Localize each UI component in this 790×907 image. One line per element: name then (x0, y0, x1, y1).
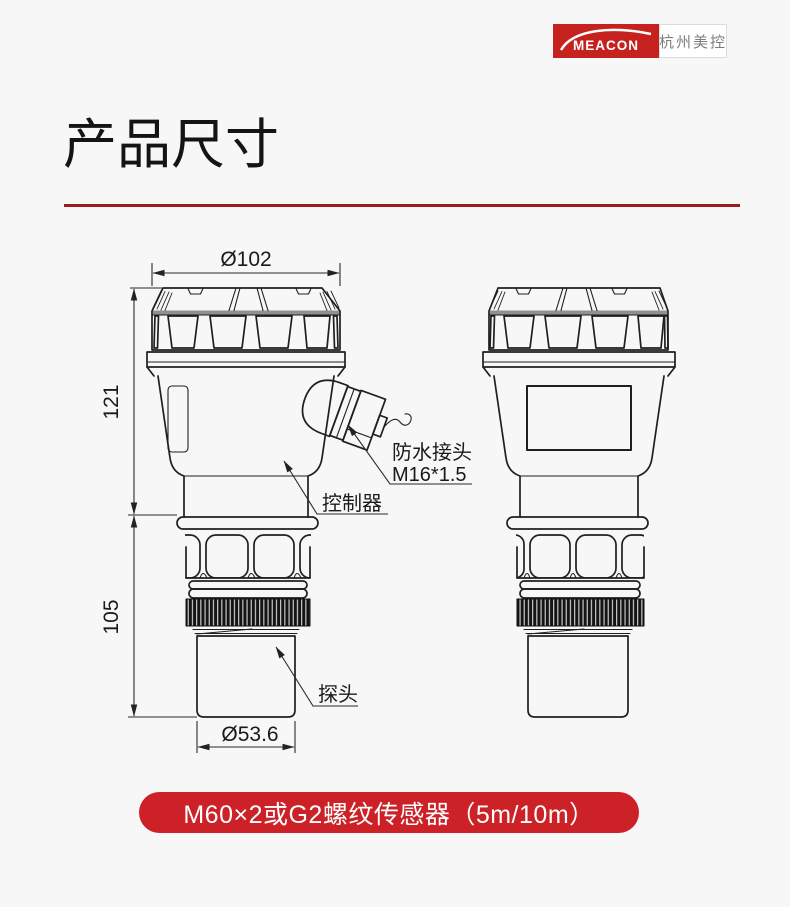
cap-flange (147, 352, 345, 367)
neck-flange (507, 517, 648, 529)
neck-flange (177, 517, 318, 529)
dimension-drawing: Ø102 121 105 Ø53.6 防水接头 M16*1.5 控制器 探头 (0, 0, 790, 907)
product-spec-text: M60×2或G2螺纹传感器（5m/10m） (183, 795, 594, 831)
dim-top-diameter: Ø102 (220, 248, 271, 271)
hex-nut (170, 535, 328, 578)
cap-notch (612, 289, 627, 295)
label-gland-thread: M16*1.5 (392, 464, 467, 486)
right-view (483, 288, 675, 717)
probe-cylinder (197, 636, 295, 717)
dim-lower-height: 105 (100, 599, 123, 634)
cap-band (490, 311, 667, 315)
dim-probe-diameter: Ø53.6 (221, 723, 278, 746)
display-window (527, 386, 631, 450)
label-waterproof-gland: 防水接头 (392, 441, 472, 464)
controller-housing (158, 376, 184, 517)
cap-band (153, 311, 339, 315)
cable-gland (296, 373, 393, 452)
product-spec-banner: M60×2或G2螺纹传感器（5m/10m） (139, 792, 639, 833)
housing-panel (168, 386, 188, 452)
probe-cylinder (528, 636, 628, 717)
label-probe: 探头 (318, 683, 358, 706)
page: { "page": { "background": "#f7f7f8" }, "… (0, 0, 790, 907)
cap-vent-slots (490, 316, 668, 348)
threaded-ring (186, 599, 310, 626)
cap-vent-slots (154, 316, 338, 348)
controller-housing (494, 376, 520, 517)
label-controller: 控制器 (322, 492, 382, 515)
cap-notch (296, 289, 311, 295)
dim-upper-height: 121 (100, 384, 123, 419)
cap-flange (483, 352, 675, 367)
cap-notch (516, 289, 531, 295)
hex-nut (500, 535, 650, 578)
cap-notch (188, 289, 203, 295)
threaded-ring (517, 599, 644, 626)
gland-wire (384, 414, 411, 427)
